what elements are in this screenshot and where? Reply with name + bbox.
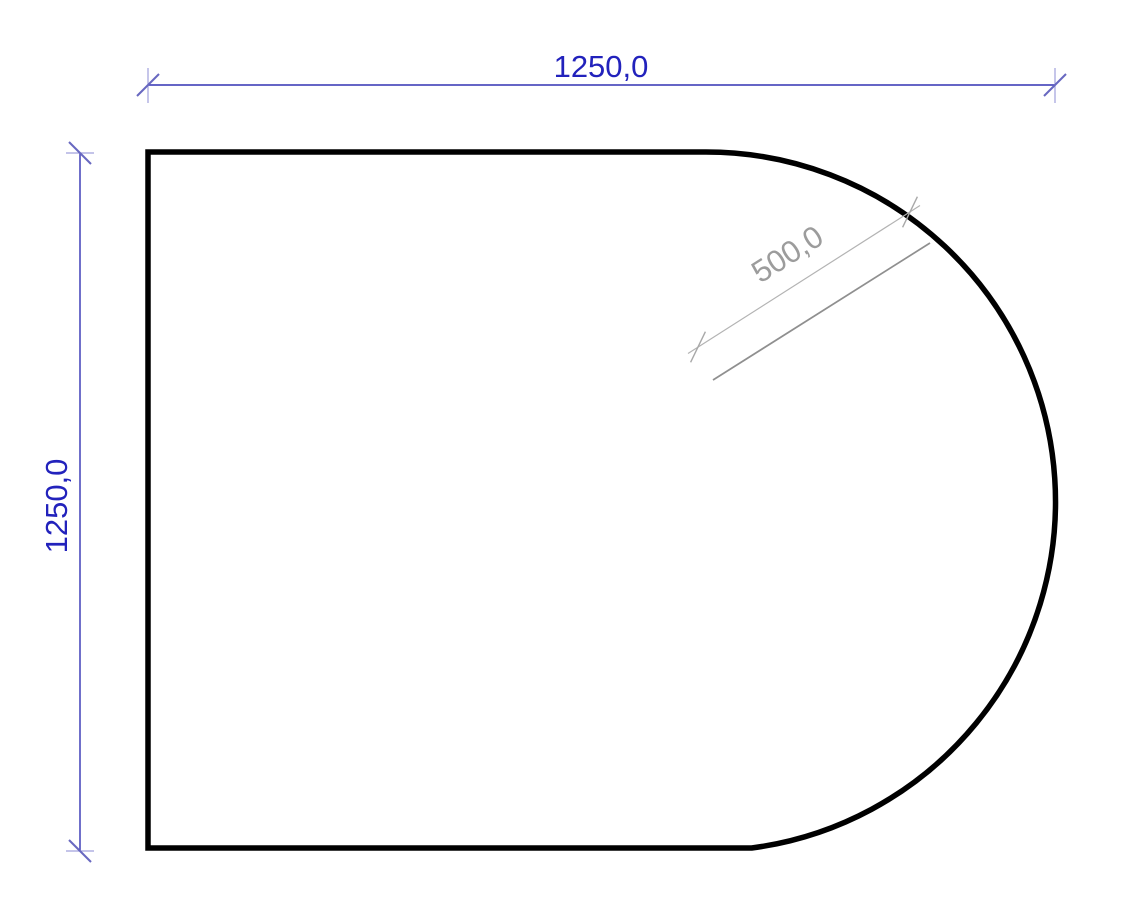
width-dimension: 1250,0 bbox=[137, 49, 1066, 103]
radius-dimension-leader-line bbox=[713, 243, 930, 380]
technical-drawing: 1250,0 1250,0 500,0 bbox=[0, 0, 1124, 921]
height-dimension-label: 1250,0 bbox=[39, 459, 74, 554]
height-dimension: 1250,0 bbox=[39, 142, 94, 862]
width-dimension-label: 1250,0 bbox=[554, 49, 649, 84]
radius-dimension: 500,0 bbox=[688, 197, 930, 380]
drawing-canvas: 1250,0 1250,0 500,0 bbox=[0, 0, 1124, 921]
plate-outline bbox=[148, 152, 1056, 848]
radius-dimension-tick-inner bbox=[691, 332, 706, 363]
radius-dimension-label: 500,0 bbox=[745, 219, 829, 290]
